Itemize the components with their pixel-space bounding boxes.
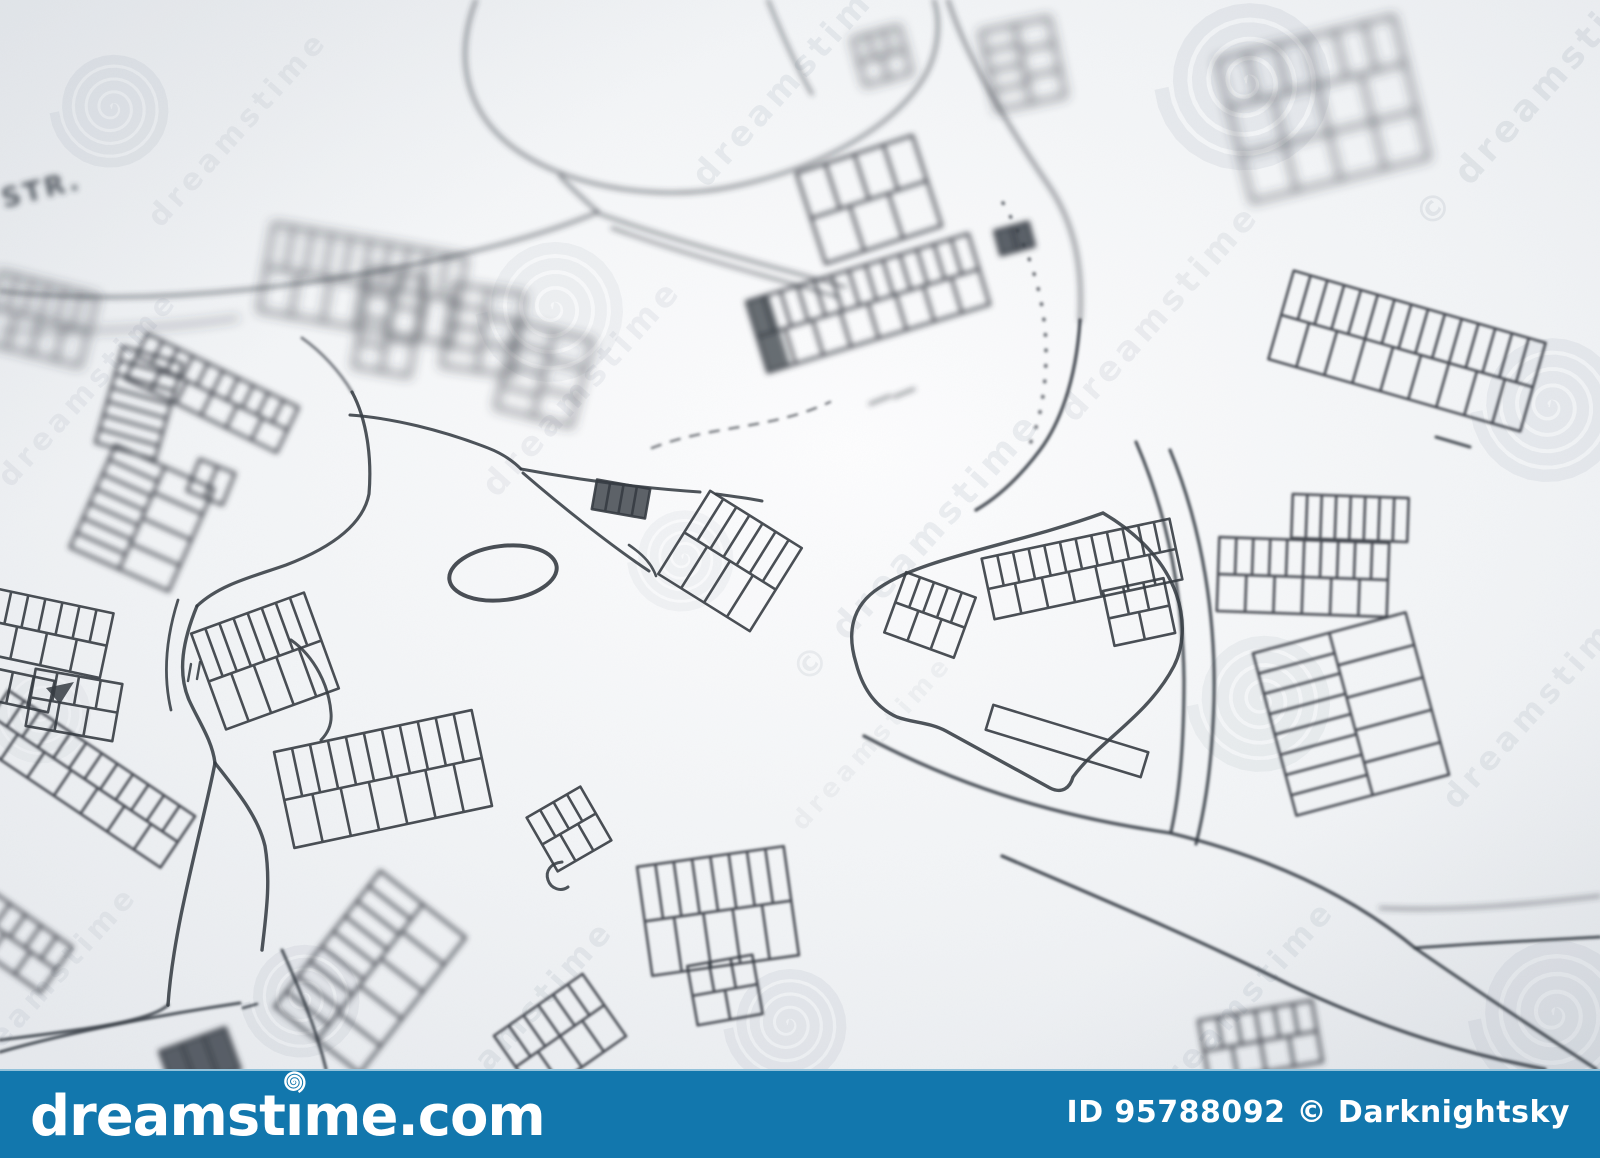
footer-bar: dreamstıme.com ID 95788092 © Darknightsk…: [0, 1069, 1600, 1158]
logo-spiral-icon: [281, 1069, 307, 1095]
logo-letter-i: ı: [285, 1089, 303, 1145]
hand-drawn-map-photo: dreamstimedreamstime© dreamstimedreamsti…: [0, 0, 1600, 1069]
image-credit: ID 95788092 © Darknightsky: [1067, 1095, 1570, 1130]
logo-text-left: dreamst: [30, 1089, 285, 1145]
dreamstime-logo: dreamstıme.com: [30, 1089, 545, 1145]
logo-text-right: me.com: [303, 1089, 545, 1145]
stock-photo-page: dreamstimedreamstime© dreamstimedreamsti…: [0, 0, 1600, 1158]
